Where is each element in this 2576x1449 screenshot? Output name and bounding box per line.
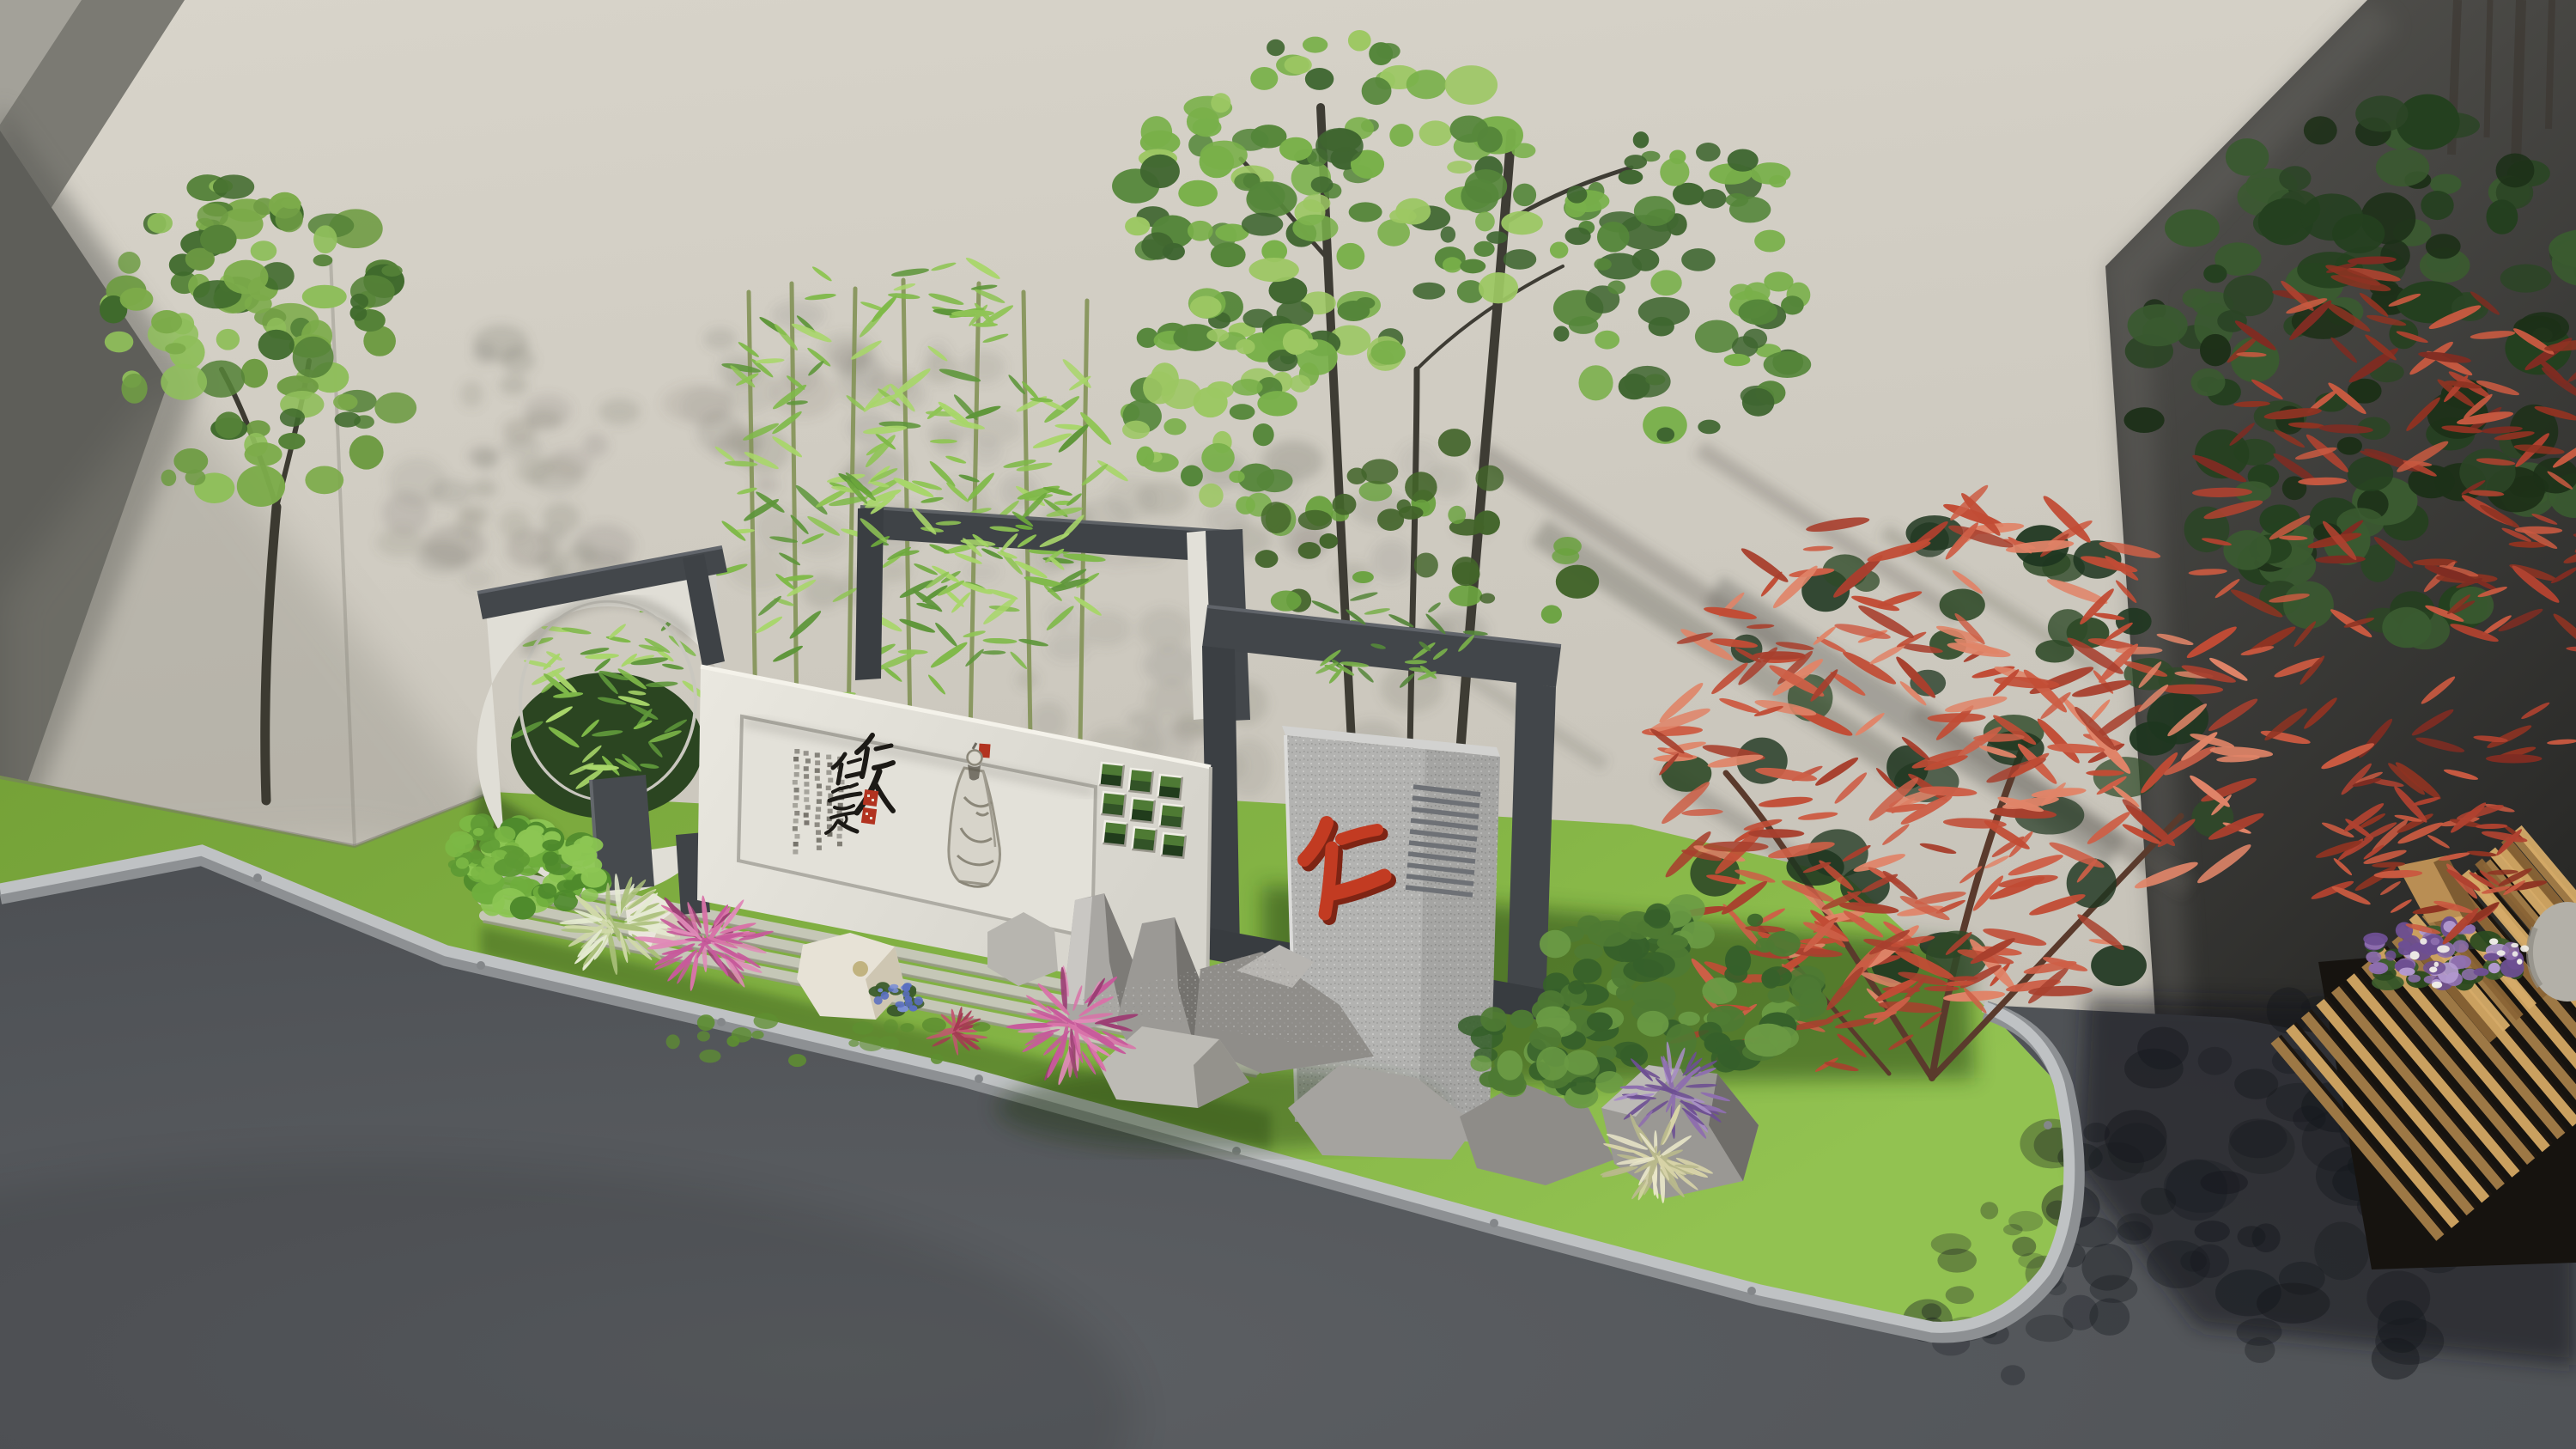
boulder-moss	[853, 961, 868, 977]
ren-character-text: 仁	[1340, 801, 1434, 911]
scene-canvas: 仁人 仁爱	[0, 0, 2576, 1449]
landscape-render: Residential courtyard corner with a Chin…	[0, 0, 2576, 1449]
lattice-window	[1099, 763, 1186, 858]
